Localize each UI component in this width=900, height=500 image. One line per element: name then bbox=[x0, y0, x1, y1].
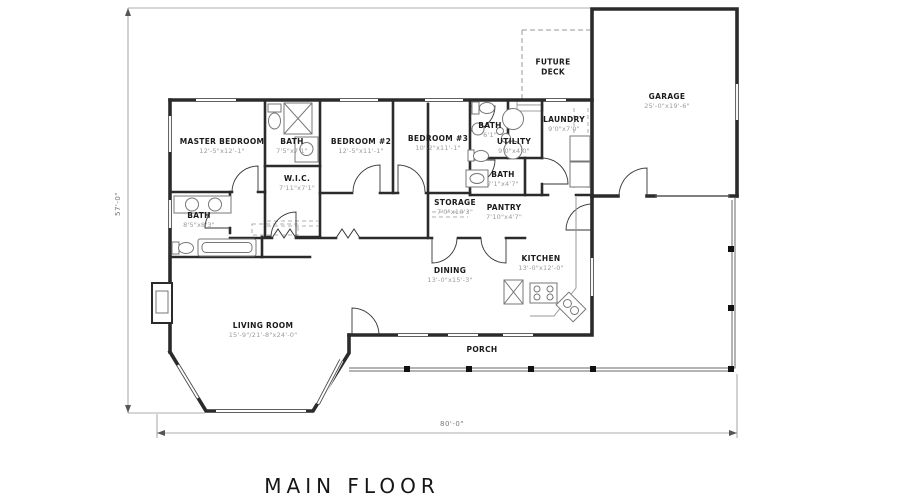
room-label-laundry: LAUNDRY 9'0"x7'0" bbox=[543, 115, 585, 133]
dimension-arrows bbox=[125, 8, 737, 436]
page-title: MAIN FLOOR bbox=[264, 474, 439, 498]
range-icon bbox=[530, 283, 557, 303]
sink-icon bbox=[466, 170, 488, 187]
room-label-bath-mid: BATH 7'1"x4'7" bbox=[487, 170, 519, 188]
room-label-master-bath: BATH 7'5"x7'1" bbox=[276, 137, 308, 155]
fireplace-icon bbox=[152, 283, 172, 323]
height-dimension-label: 57'-0" bbox=[114, 192, 122, 216]
interior-walls bbox=[170, 100, 592, 257]
toilet-icon bbox=[172, 242, 194, 254]
fixtures bbox=[152, 102, 590, 323]
toilet-icon bbox=[268, 104, 281, 129]
room-label-utility: UTILITY 9'0"x4'0" bbox=[497, 137, 531, 155]
toilet-icon bbox=[468, 150, 489, 162]
room-label-bath-left: BATH 8'5"x8'3" bbox=[183, 211, 215, 229]
floor-plan: MASTER BEDROOM 12'-5"x12'-1" BATH 7'5"x7… bbox=[0, 0, 900, 500]
room-label-garage: GARAGE 25'-0"x19'-6" bbox=[644, 92, 690, 110]
room-label-dining: DINING 13'-0"x15'-3" bbox=[427, 266, 473, 284]
bathtub-icon bbox=[198, 239, 256, 256]
room-label-porch: PORCH bbox=[467, 345, 498, 355]
room-label-bedroom2: BEDROOM #2 12'-5"x11'-1" bbox=[331, 137, 391, 155]
dimension-lines bbox=[128, 8, 737, 438]
width-dimension-label: 80'-0" bbox=[440, 420, 464, 428]
room-label-bedroom3: BEDROOM #3 10'-2"x11'-1" bbox=[408, 134, 468, 152]
room-label-pantry: PANTRY 7'10"x4'7" bbox=[486, 203, 522, 221]
kitchen-island-icon bbox=[504, 280, 523, 304]
room-label-master-bedroom: MASTER BEDROOM 12'-5"x12'-1" bbox=[180, 137, 265, 155]
washer-dryer-icon bbox=[570, 136, 590, 187]
room-label-living-room: LIVING ROOM 15'-9"/21'-8"x24'-0" bbox=[229, 321, 298, 339]
room-label-future-deck: FUTURE DECK bbox=[528, 57, 578, 77]
room-label-wic: W.I.C. 7'11"x7'1" bbox=[279, 174, 315, 192]
shower-icon bbox=[284, 103, 312, 134]
room-label-storage: STORAGE 7'0"x10'3" bbox=[434, 198, 476, 216]
toilet-icon bbox=[472, 102, 495, 114]
room-label-kitchen: KITCHEN 13'-0"x12'-0" bbox=[518, 254, 564, 272]
kitchen-sink-icon bbox=[556, 292, 586, 322]
